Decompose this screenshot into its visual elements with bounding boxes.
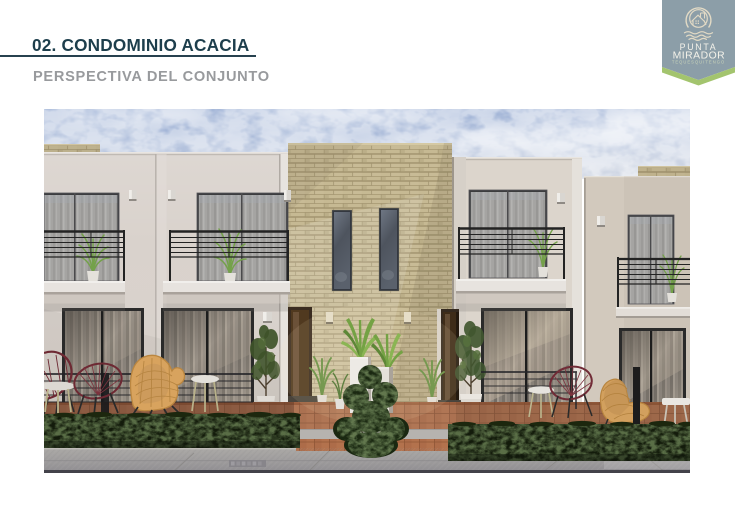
svg-text:TEQUESQUITENGO: TEQUESQUITENGO — [672, 60, 725, 65]
